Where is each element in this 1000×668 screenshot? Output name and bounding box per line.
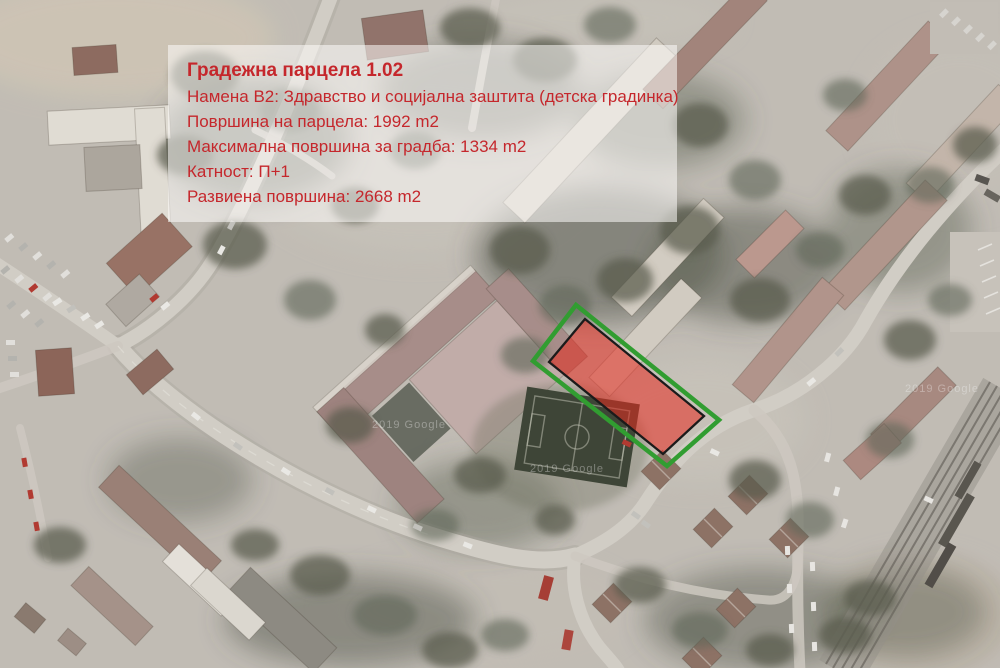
info-line-katnost: Катност: П+1 (187, 159, 659, 184)
info-box-title: Градежна парцела 1.02 (187, 57, 659, 84)
info-line-razviena: Развиена површина: 2668 m2 (187, 184, 659, 209)
info-line-max-gradba: Максимална површина за градба: 1334 m2 (187, 134, 659, 159)
annotated-satellite-image: 2019 Google 2019 Google 2019 Google Град… (0, 0, 1000, 668)
info-line-povrshina-parcela: Површина на парцела: 1992 m2 (187, 109, 659, 134)
info-line-namena: Намена В2: Здравство и социјална заштита… (187, 84, 659, 109)
info-box: Градежна парцела 1.02 Намена В2: Здравст… (168, 45, 677, 222)
